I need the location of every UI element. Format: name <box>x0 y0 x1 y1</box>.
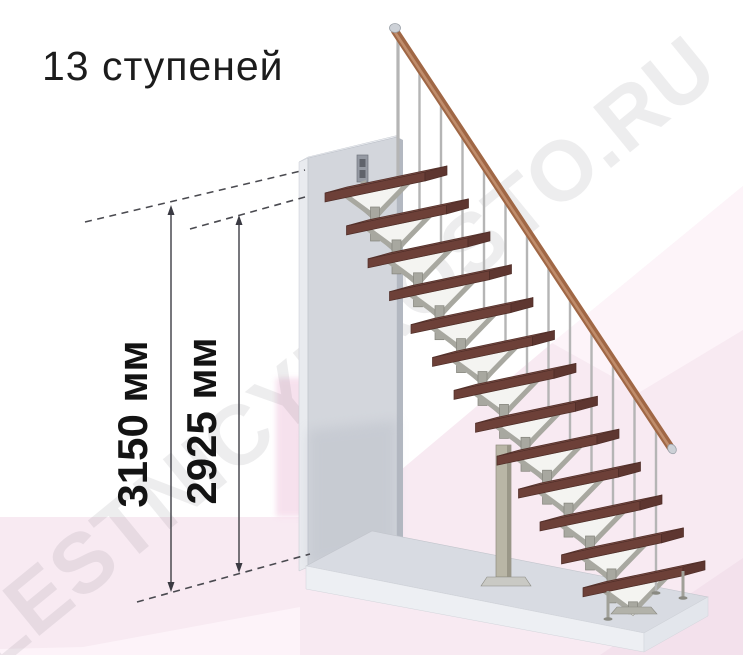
baluster-foot <box>652 591 661 595</box>
dimension-label-total-height: 3150 мм <box>109 340 156 507</box>
diagram-svg: LESTNICYPROSTO.RU <box>0 0 743 655</box>
wall-right-edge <box>397 137 403 549</box>
bottom-leg-right-foot <box>679 596 688 600</box>
wall-bracket-slot <box>360 159 366 167</box>
dimension-label-steps-height: 2925 мм <box>178 337 225 504</box>
bottom-leg-left-foot <box>604 617 613 621</box>
column-base-plate <box>481 577 531 586</box>
wall-bracket-slot <box>360 170 366 178</box>
page-title: 13 ступеней <box>42 43 284 89</box>
staircase-diagram: LESTNICYPROSTO.RU <box>0 0 743 655</box>
bottom-base-plate <box>611 607 657 614</box>
handrail-top-cap <box>390 24 401 33</box>
wall-left-face <box>299 158 308 571</box>
column-shade <box>507 445 511 577</box>
